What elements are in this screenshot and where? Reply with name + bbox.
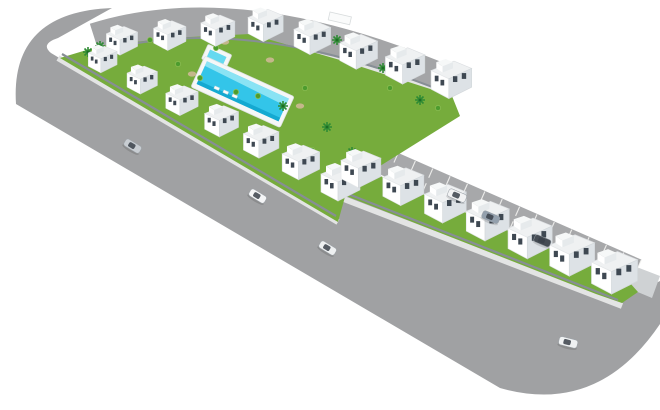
render-canvas — [0, 0, 660, 410]
bush — [302, 85, 307, 90]
bush — [197, 75, 202, 80]
bush — [233, 89, 238, 94]
bush — [175, 61, 180, 66]
bush — [387, 85, 392, 90]
bush — [255, 93, 260, 98]
sand-patch — [296, 103, 304, 108]
palm-tree-icon — [278, 101, 288, 111]
bush — [147, 37, 152, 42]
garden-pavilion — [328, 12, 351, 25]
palm-tree-icon — [415, 95, 425, 105]
sand-patch — [266, 57, 274, 62]
palm-tree-icon — [322, 122, 332, 132]
development-aerial-render — [0, 0, 660, 410]
townhouse — [431, 59, 472, 99]
bush — [435, 105, 440, 110]
sand-patch — [188, 71, 196, 76]
